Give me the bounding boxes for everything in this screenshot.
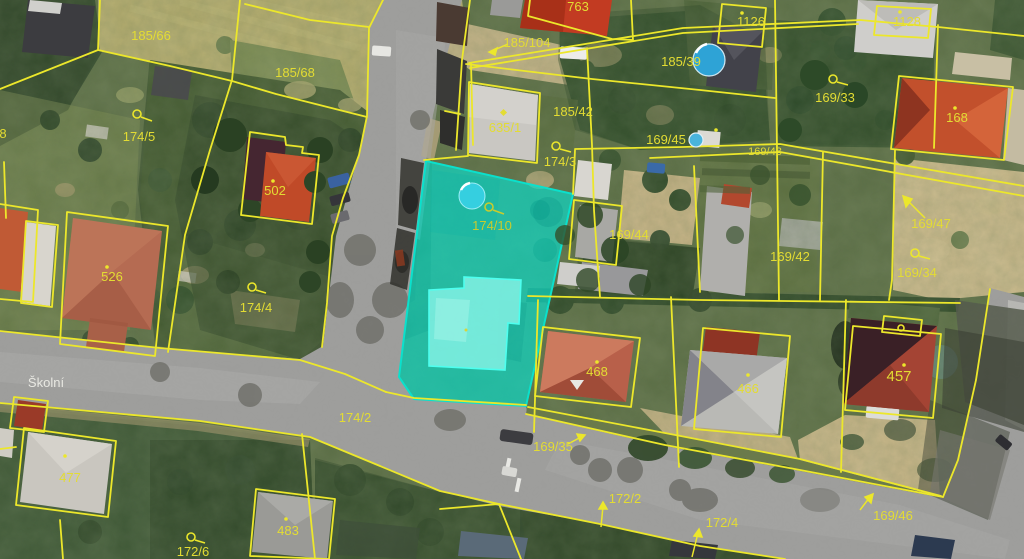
svg-text:185/66: 185/66 bbox=[131, 28, 171, 43]
svg-text:174/5: 174/5 bbox=[123, 129, 156, 144]
svg-text:174/4: 174/4 bbox=[240, 300, 273, 315]
svg-text:169/45: 169/45 bbox=[646, 132, 686, 147]
svg-text:172/4: 172/4 bbox=[706, 515, 739, 530]
svg-text:174/3: 174/3 bbox=[544, 154, 577, 169]
svg-text:169/44: 169/44 bbox=[609, 227, 649, 242]
svg-text:174/10: 174/10 bbox=[472, 218, 512, 233]
svg-text:8: 8 bbox=[0, 126, 7, 141]
svg-text:185/68: 185/68 bbox=[275, 65, 315, 80]
svg-text:468: 468 bbox=[586, 364, 608, 379]
svg-text:1128: 1128 bbox=[893, 14, 921, 29]
svg-text:466: 466 bbox=[737, 381, 759, 396]
svg-text:172/6: 172/6 bbox=[177, 544, 210, 559]
svg-text:169/42: 169/42 bbox=[770, 249, 810, 264]
svg-text:763: 763 bbox=[567, 0, 589, 14]
svg-text:169/43: 169/43 bbox=[748, 146, 782, 158]
svg-text:635/1: 635/1 bbox=[489, 120, 522, 135]
svg-text:477: 477 bbox=[59, 470, 81, 485]
svg-text:169/46: 169/46 bbox=[873, 508, 913, 523]
svg-text:172/2: 172/2 bbox=[609, 491, 642, 506]
svg-text:174/2: 174/2 bbox=[339, 410, 372, 425]
svg-text:1126: 1126 bbox=[737, 14, 765, 29]
svg-text:526: 526 bbox=[101, 269, 123, 284]
svg-text:169/35: 169/35 bbox=[533, 439, 573, 454]
svg-text:483: 483 bbox=[277, 523, 299, 538]
svg-text:185/39: 185/39 bbox=[661, 54, 701, 69]
svg-text:169/33: 169/33 bbox=[815, 90, 855, 105]
svg-text:169/47: 169/47 bbox=[911, 216, 951, 231]
svg-text:185/104: 185/104 bbox=[504, 35, 551, 50]
svg-text:502: 502 bbox=[264, 183, 286, 198]
svg-text:457: 457 bbox=[886, 368, 911, 385]
svg-text:Školní: Školní bbox=[28, 375, 65, 390]
svg-text:168: 168 bbox=[946, 110, 968, 125]
svg-text:185/42: 185/42 bbox=[553, 104, 593, 119]
svg-text:169/34: 169/34 bbox=[897, 265, 937, 280]
